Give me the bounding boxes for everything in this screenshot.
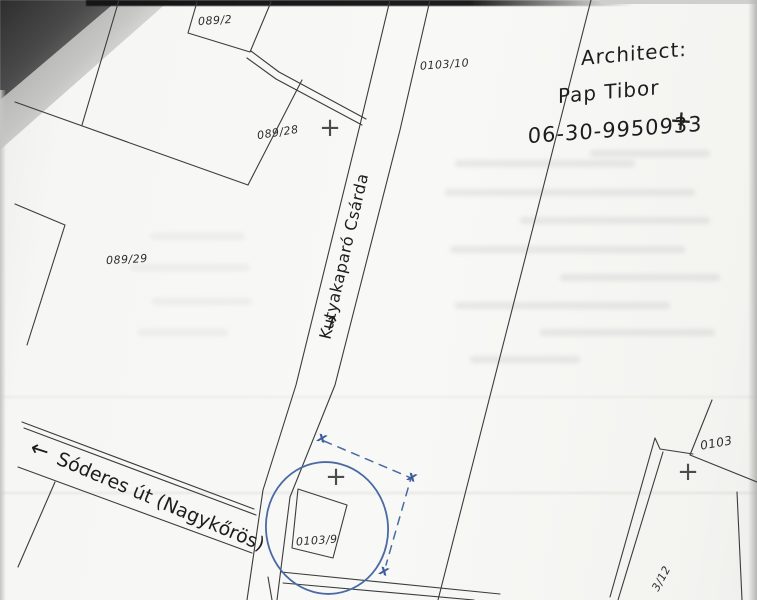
survey-cross: + bbox=[319, 115, 341, 141]
scanned-cadastral-map: 089/2 089/28 089/29 0103/10 0103/9 0103 … bbox=[0, 0, 757, 600]
survey-cross: + bbox=[325, 464, 347, 490]
survey-cross: + bbox=[677, 459, 699, 485]
parcel-label-089-29: 089/29 bbox=[106, 252, 148, 267]
parcel-label-089-2: 089/2 bbox=[198, 13, 233, 28]
